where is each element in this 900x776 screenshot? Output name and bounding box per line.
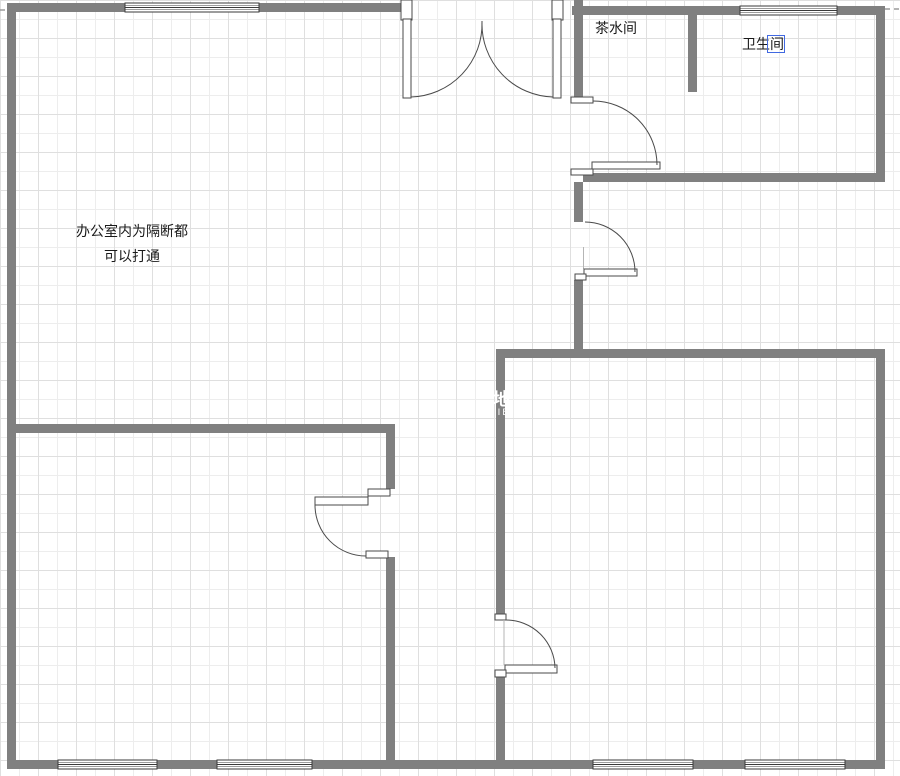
wall-room-left-right-a[interactable] [386,424,395,489]
door-jamb [401,0,412,20]
door-jamb [495,614,506,620]
label-tea-room[interactable]: 茶水间 [595,21,637,37]
wall-outer-right-lower[interactable] [876,349,885,769]
window-top-left[interactable] [125,3,259,12]
door-jamb [552,0,563,20]
door-tearoom[interactable] [571,97,660,175]
wall-room-right-top[interactable] [496,349,885,358]
floorplan-canvas: 茶水间 卫生间 办公室内为隔断都 可以打通 地 IE [0,0,900,776]
door-jamb [571,169,593,175]
door-hallway[interactable] [575,222,637,280]
wall-bathroom-bottom[interactable] [583,173,885,182]
door-swing-arc [315,505,366,556]
door-jamb [366,551,388,558]
wall-tearoom-left-a[interactable] [574,0,583,97]
office-note-line2: 可以打通 [61,245,203,270]
text-selection-box [767,35,785,53]
wall-center-upper[interactable] [496,358,505,615]
door-leaf [553,19,561,98]
door-jamb [495,670,506,677]
window-bathroom-top[interactable] [740,6,837,15]
window-bottom-4[interactable] [745,760,845,769]
window-bottom-1[interactable] [58,760,157,769]
wall-tearoom-left-c[interactable] [574,280,583,353]
door-swing-arc [482,22,553,97]
wall-outer-right-upper[interactable] [876,6,885,181]
wall-tea-bath-partition[interactable] [688,10,697,92]
door-leaf [592,162,660,169]
door-leaf [315,497,368,505]
wall-tearoom-left-b[interactable] [574,182,583,222]
office-note[interactable]: 办公室内为隔断都 可以打通 [61,220,203,270]
walls [7,0,885,769]
door-jamb [575,274,586,280]
door-jamb [368,489,390,496]
floorplan-drawing [0,0,900,776]
window-bottom-2[interactable] [217,760,312,769]
door-swing-arc [506,620,555,668]
door-jamb [571,97,593,103]
windows [58,3,845,769]
wall-center-lower[interactable] [496,677,505,769]
door-leaf [584,269,637,276]
door-leaf [505,665,557,673]
door-room-right[interactable] [495,614,557,677]
office-note-line1: 办公室内为隔断都 [61,220,203,245]
wall-outer-left[interactable] [7,3,16,769]
window-bottom-3[interactable] [593,760,693,769]
door-entry-double[interactable] [401,0,563,98]
door-swing-arc [593,101,657,165]
wall-room-left-top[interactable] [16,424,395,433]
door-swing-arc [411,22,482,97]
door-leaf [403,19,411,98]
door-swing-arc [585,222,635,272]
wall-room-left-right-b[interactable] [386,557,395,769]
door-room-left[interactable] [315,489,390,558]
wall-outer-top-right[interactable] [572,6,885,15]
